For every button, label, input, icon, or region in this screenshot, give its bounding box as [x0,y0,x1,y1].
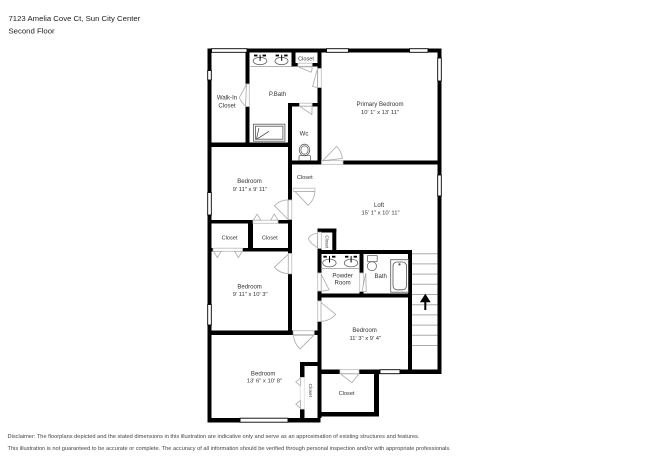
svg-text:13' 6" x 10' 8": 13' 6" x 10' 8" [247,378,282,384]
svg-text:Closet: Closet [298,56,314,62]
svg-text:11' 3" x 9' 4": 11' 3" x 9' 4" [349,336,381,342]
svg-text:Primary Bedroom: Primary Bedroom [356,102,403,108]
svg-text:Loft: Loft [374,203,384,209]
svg-text:Second Floor: Second Floor [9,27,56,36]
svg-text:Walk-In: Walk-In [217,96,237,102]
svg-text:Closet: Closet [262,236,278,242]
svg-text:Bedroom: Bedroom [251,372,276,378]
svg-text:Closet: Closet [308,384,313,398]
svg-text:Wc: Wc [300,132,309,138]
svg-text:P.Bath: P.Bath [269,92,286,98]
svg-text:Room: Room [335,281,351,287]
svg-text:10' 1" x 13' 11": 10' 1" x 13' 11" [361,110,399,116]
svg-text:Closet: Closet [222,236,238,242]
svg-text:Disclaimer: The floorplans dep: Disclaimer: The floorplans depicted and … [8,434,420,440]
svg-text:7123 Amelia Cove Ct, Sun City: 7123 Amelia Cove Ct, Sun City Center [9,14,141,23]
svg-text:15' 1" x 10' 11": 15' 1" x 10' 11" [361,210,399,216]
svg-text:This illustration is not guara: This illustration is not guaranteed to b… [8,446,452,452]
svg-text:Closet: Closet [339,391,355,397]
svg-text:Bedroom: Bedroom [352,328,377,334]
svg-text:Bedroom: Bedroom [237,284,262,290]
svg-text:9' 11" x 9' 11": 9' 11" x 9' 11" [233,187,267,193]
svg-text:9' 11" x 10' 3": 9' 11" x 10' 3" [233,292,268,298]
svg-text:Bath: Bath [374,274,386,280]
svg-text:Closet: Closet [325,235,330,249]
svg-text:Powder: Powder [332,273,353,279]
svg-text:Bedroom: Bedroom [237,179,262,185]
svg-text:Closet: Closet [218,104,235,110]
svg-text:Closet: Closet [297,175,313,181]
